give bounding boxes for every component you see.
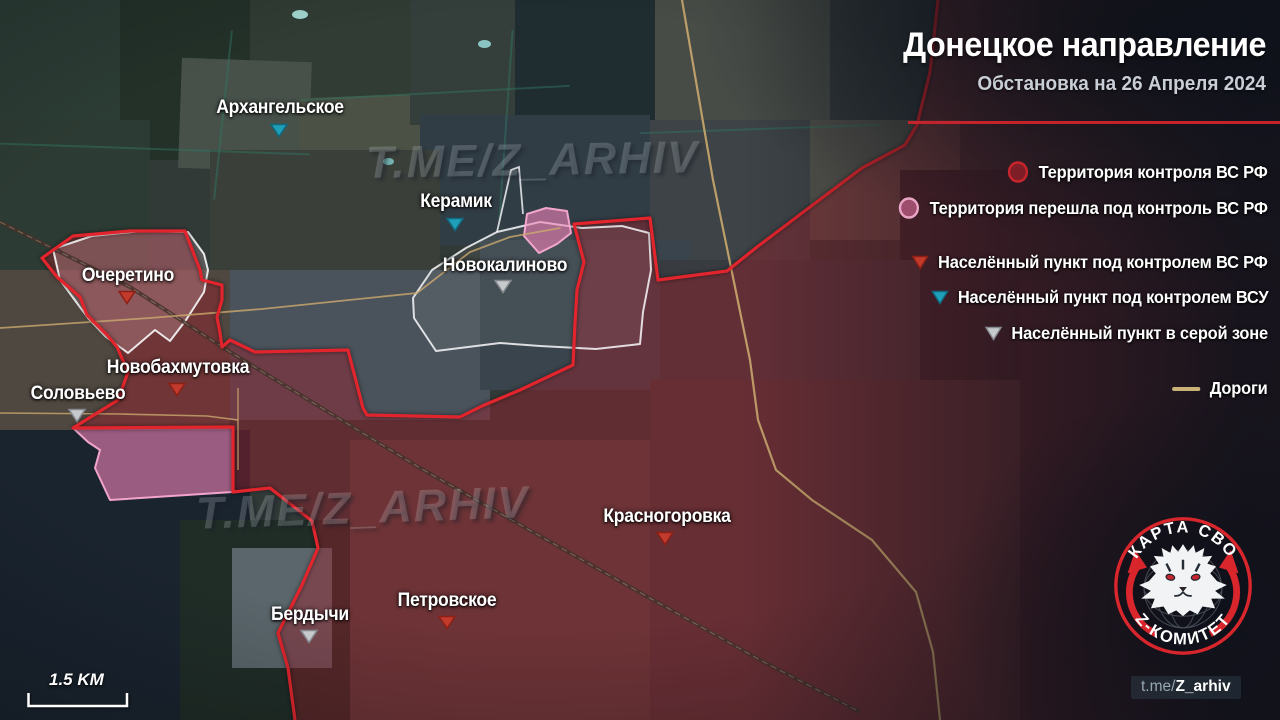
- settlement-marker-rf-icon: [438, 615, 456, 630]
- town-label: Новокалиново: [443, 254, 568, 277]
- settlement-marker-afu-icon: [270, 123, 288, 138]
- handle-prefix: t.me/: [1141, 678, 1175, 695]
- settlement-marker-gray-icon: [985, 326, 1002, 341]
- town-label: Красногоровка: [603, 505, 730, 528]
- watermark-top: T.ME/Z_ARHIV: [366, 131, 700, 189]
- rf-territory-marker-icon: [1007, 160, 1030, 184]
- legend-label: Территория перешла под контроль ВС РФ: [930, 198, 1268, 219]
- scale-bracket: [27, 692, 129, 708]
- settlement-marker-afu-icon: [446, 217, 464, 232]
- settlement-marker-rf-icon: [912, 255, 929, 270]
- z-komitet-logo: КАРТА СВО Z-КОМИТЕТ: [1110, 513, 1256, 659]
- settlement-marker-gray-icon: [68, 408, 86, 423]
- road-marker-icon: [1172, 387, 1200, 391]
- town-label: Очеретино: [82, 264, 174, 287]
- telegram-handle[interactable]: t.me/Z_arhiv: [1131, 676, 1241, 699]
- town-label: Архангельское: [216, 96, 344, 119]
- settlement-marker-rf-icon: [118, 290, 136, 305]
- legend-item-rf-settlement: Населённый пункт под контролем ВС РФ: [912, 252, 1268, 273]
- legend-label: Населённый пункт под контролем ВСУ: [957, 287, 1268, 308]
- settlement-marker-gray-icon: [494, 279, 512, 294]
- legend-label: Населённый пункт под контролем ВС РФ: [938, 252, 1268, 273]
- town-label: Новобахмутовка: [107, 356, 249, 379]
- legend-label: Населённый пункт в серой зоне: [1011, 323, 1268, 344]
- header-divider: [908, 121, 1280, 124]
- settlement-marker-afu-icon: [931, 290, 948, 305]
- captured-territory-marker-icon: [898, 196, 921, 220]
- town-label: Керамик: [420, 190, 492, 213]
- settlement-marker-gray-icon: [300, 629, 318, 644]
- settlement-marker-rf-icon: [656, 531, 674, 546]
- settlement-marker-rf-icon: [168, 382, 186, 397]
- scale-bar: 1.5 KM: [27, 670, 129, 708]
- legend-label: Дороги: [1210, 378, 1268, 399]
- legend-item-rf-territory: Территория контроля ВС РФ: [1007, 160, 1268, 184]
- page-title: Донецкое направление: [903, 26, 1266, 65]
- handle-name: Z_arhiv: [1175, 678, 1230, 695]
- town-label: Соловьево: [31, 382, 126, 405]
- map-header: Донецкое направление Обстановка на 26 Ап…: [903, 26, 1266, 96]
- map-canvas: T.ME/Z_ARHIV T.ME/Z_ARHIV Архангельское …: [0, 0, 1280, 720]
- page-subtitle: Обстановка на 26 Апреля 2024: [903, 73, 1266, 96]
- scale-label: 1.5 KM: [49, 670, 129, 690]
- town-label: Бердычи: [271, 603, 349, 626]
- legend-item-rf-new-territory: Территория перешла под контроль ВС РФ: [898, 196, 1268, 220]
- legend-label: Территория контроля ВС РФ: [1039, 162, 1268, 183]
- legend-item-gray-zone-settlement: Населённый пункт в серой зоне: [985, 323, 1268, 344]
- legend-item-afu-settlement: Населённый пункт под контролем ВСУ: [931, 287, 1268, 308]
- legend-item-roads: Дороги: [1172, 378, 1268, 399]
- town-label: Петровское: [398, 589, 497, 612]
